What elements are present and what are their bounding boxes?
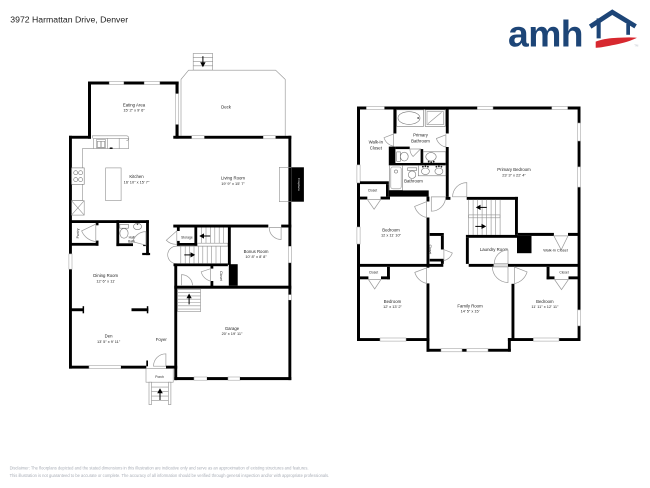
svg-text:Walk-In: Walk-In bbox=[369, 140, 384, 145]
svg-text:Disclaimer: The floorplans dep: Disclaimer: The floorplans depicted and … bbox=[10, 465, 309, 470]
svg-text:Bathroom: Bathroom bbox=[411, 138, 430, 143]
svg-text:Kitchen: Kitchen bbox=[129, 174, 144, 179]
svg-text:Den: Den bbox=[105, 334, 113, 339]
svg-text:Closet: Closet bbox=[370, 146, 383, 151]
svg-text:15' 2" x 9' 6": 15' 2" x 9' 6" bbox=[123, 108, 145, 113]
svg-text:10' 8" x 8' 8": 10' 8" x 8' 8" bbox=[245, 254, 267, 259]
svg-text:12 x 11' 10": 12 x 11' 10" bbox=[381, 233, 402, 238]
svg-text:16' 10" x 15' 7": 16' 10" x 15' 7" bbox=[124, 179, 150, 184]
svg-text:Closet: Closet bbox=[369, 271, 378, 275]
svg-text:Foyer: Foyer bbox=[156, 337, 168, 342]
svg-text:Walk-In Closet: Walk-In Closet bbox=[543, 249, 568, 253]
svg-text:12' x 13' 2": 12' x 13' 2" bbox=[383, 304, 402, 309]
svg-text:Fireplace: Fireplace bbox=[297, 178, 301, 191]
svg-text:23' 3" x 22' 4": 23' 3" x 22' 4" bbox=[502, 172, 526, 177]
svg-text:19' 9" x 15' 7": 19' 9" x 15' 7" bbox=[221, 181, 245, 186]
svg-text:Deck: Deck bbox=[221, 105, 232, 110]
svg-text:TM: TM bbox=[634, 43, 639, 47]
svg-text:Pantry: Pantry bbox=[76, 228, 80, 238]
svg-text:Storage: Storage bbox=[181, 235, 193, 239]
svg-text:Living Room: Living Room bbox=[221, 176, 245, 181]
svg-text:Primary: Primary bbox=[413, 133, 429, 138]
svg-text:amh: amh bbox=[508, 13, 583, 55]
svg-text:This illustration is not guara: This illustration is not guaranteed to b… bbox=[10, 473, 330, 478]
svg-text:11' 11" x 12' 11": 11' 11" x 12' 11" bbox=[531, 304, 559, 309]
svg-text:Closet: Closet bbox=[559, 271, 568, 275]
svg-text:Eating Area: Eating Area bbox=[123, 102, 146, 107]
svg-text:Garage: Garage bbox=[225, 326, 240, 331]
svg-text:Dining Room: Dining Room bbox=[93, 273, 118, 278]
svg-text:20' x 19' 11": 20' x 19' 11" bbox=[222, 331, 243, 336]
svg-text:Primary Bedroom: Primary Bedroom bbox=[497, 167, 531, 172]
svg-text:14' 5" x 15': 14' 5" x 15' bbox=[461, 309, 480, 314]
svg-text:13' 5" x 9' 11": 13' 5" x 9' 11" bbox=[97, 339, 121, 344]
svg-text:Bath: Bath bbox=[128, 240, 135, 244]
svg-text:12' 6" x 11': 12' 6" x 11' bbox=[96, 278, 115, 283]
svg-text:Closet: Closet bbox=[219, 271, 223, 281]
svg-text:Porch: Porch bbox=[155, 375, 164, 379]
svg-text:Bathroom: Bathroom bbox=[404, 179, 423, 184]
svg-text:Closet: Closet bbox=[368, 189, 377, 193]
svg-text:3972 Harmattan Drive, Denver: 3972 Harmattan Drive, Denver bbox=[10, 15, 128, 25]
